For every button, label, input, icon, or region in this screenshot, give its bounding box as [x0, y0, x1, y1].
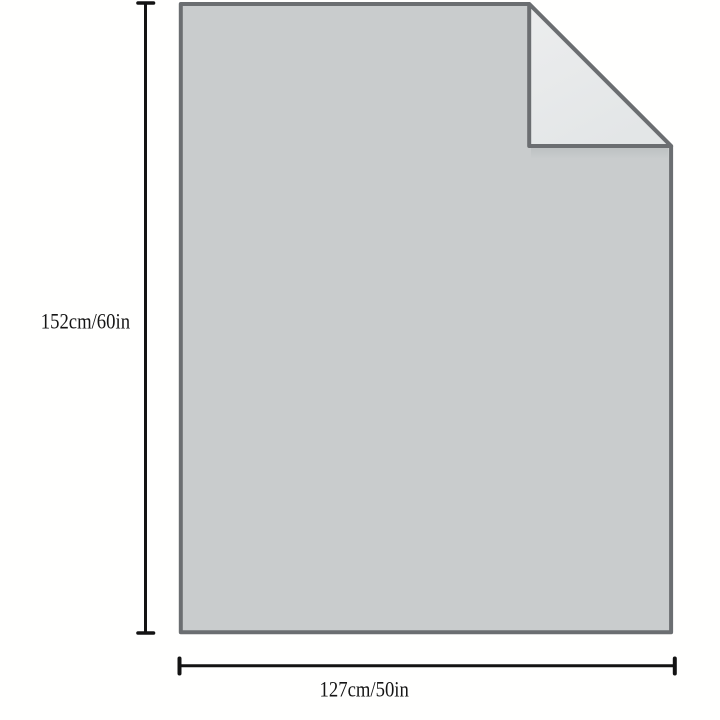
svg-text:152cm/60in: 152cm/60in [41, 310, 130, 334]
svg-text:127cm/50in: 127cm/50in [320, 678, 409, 702]
